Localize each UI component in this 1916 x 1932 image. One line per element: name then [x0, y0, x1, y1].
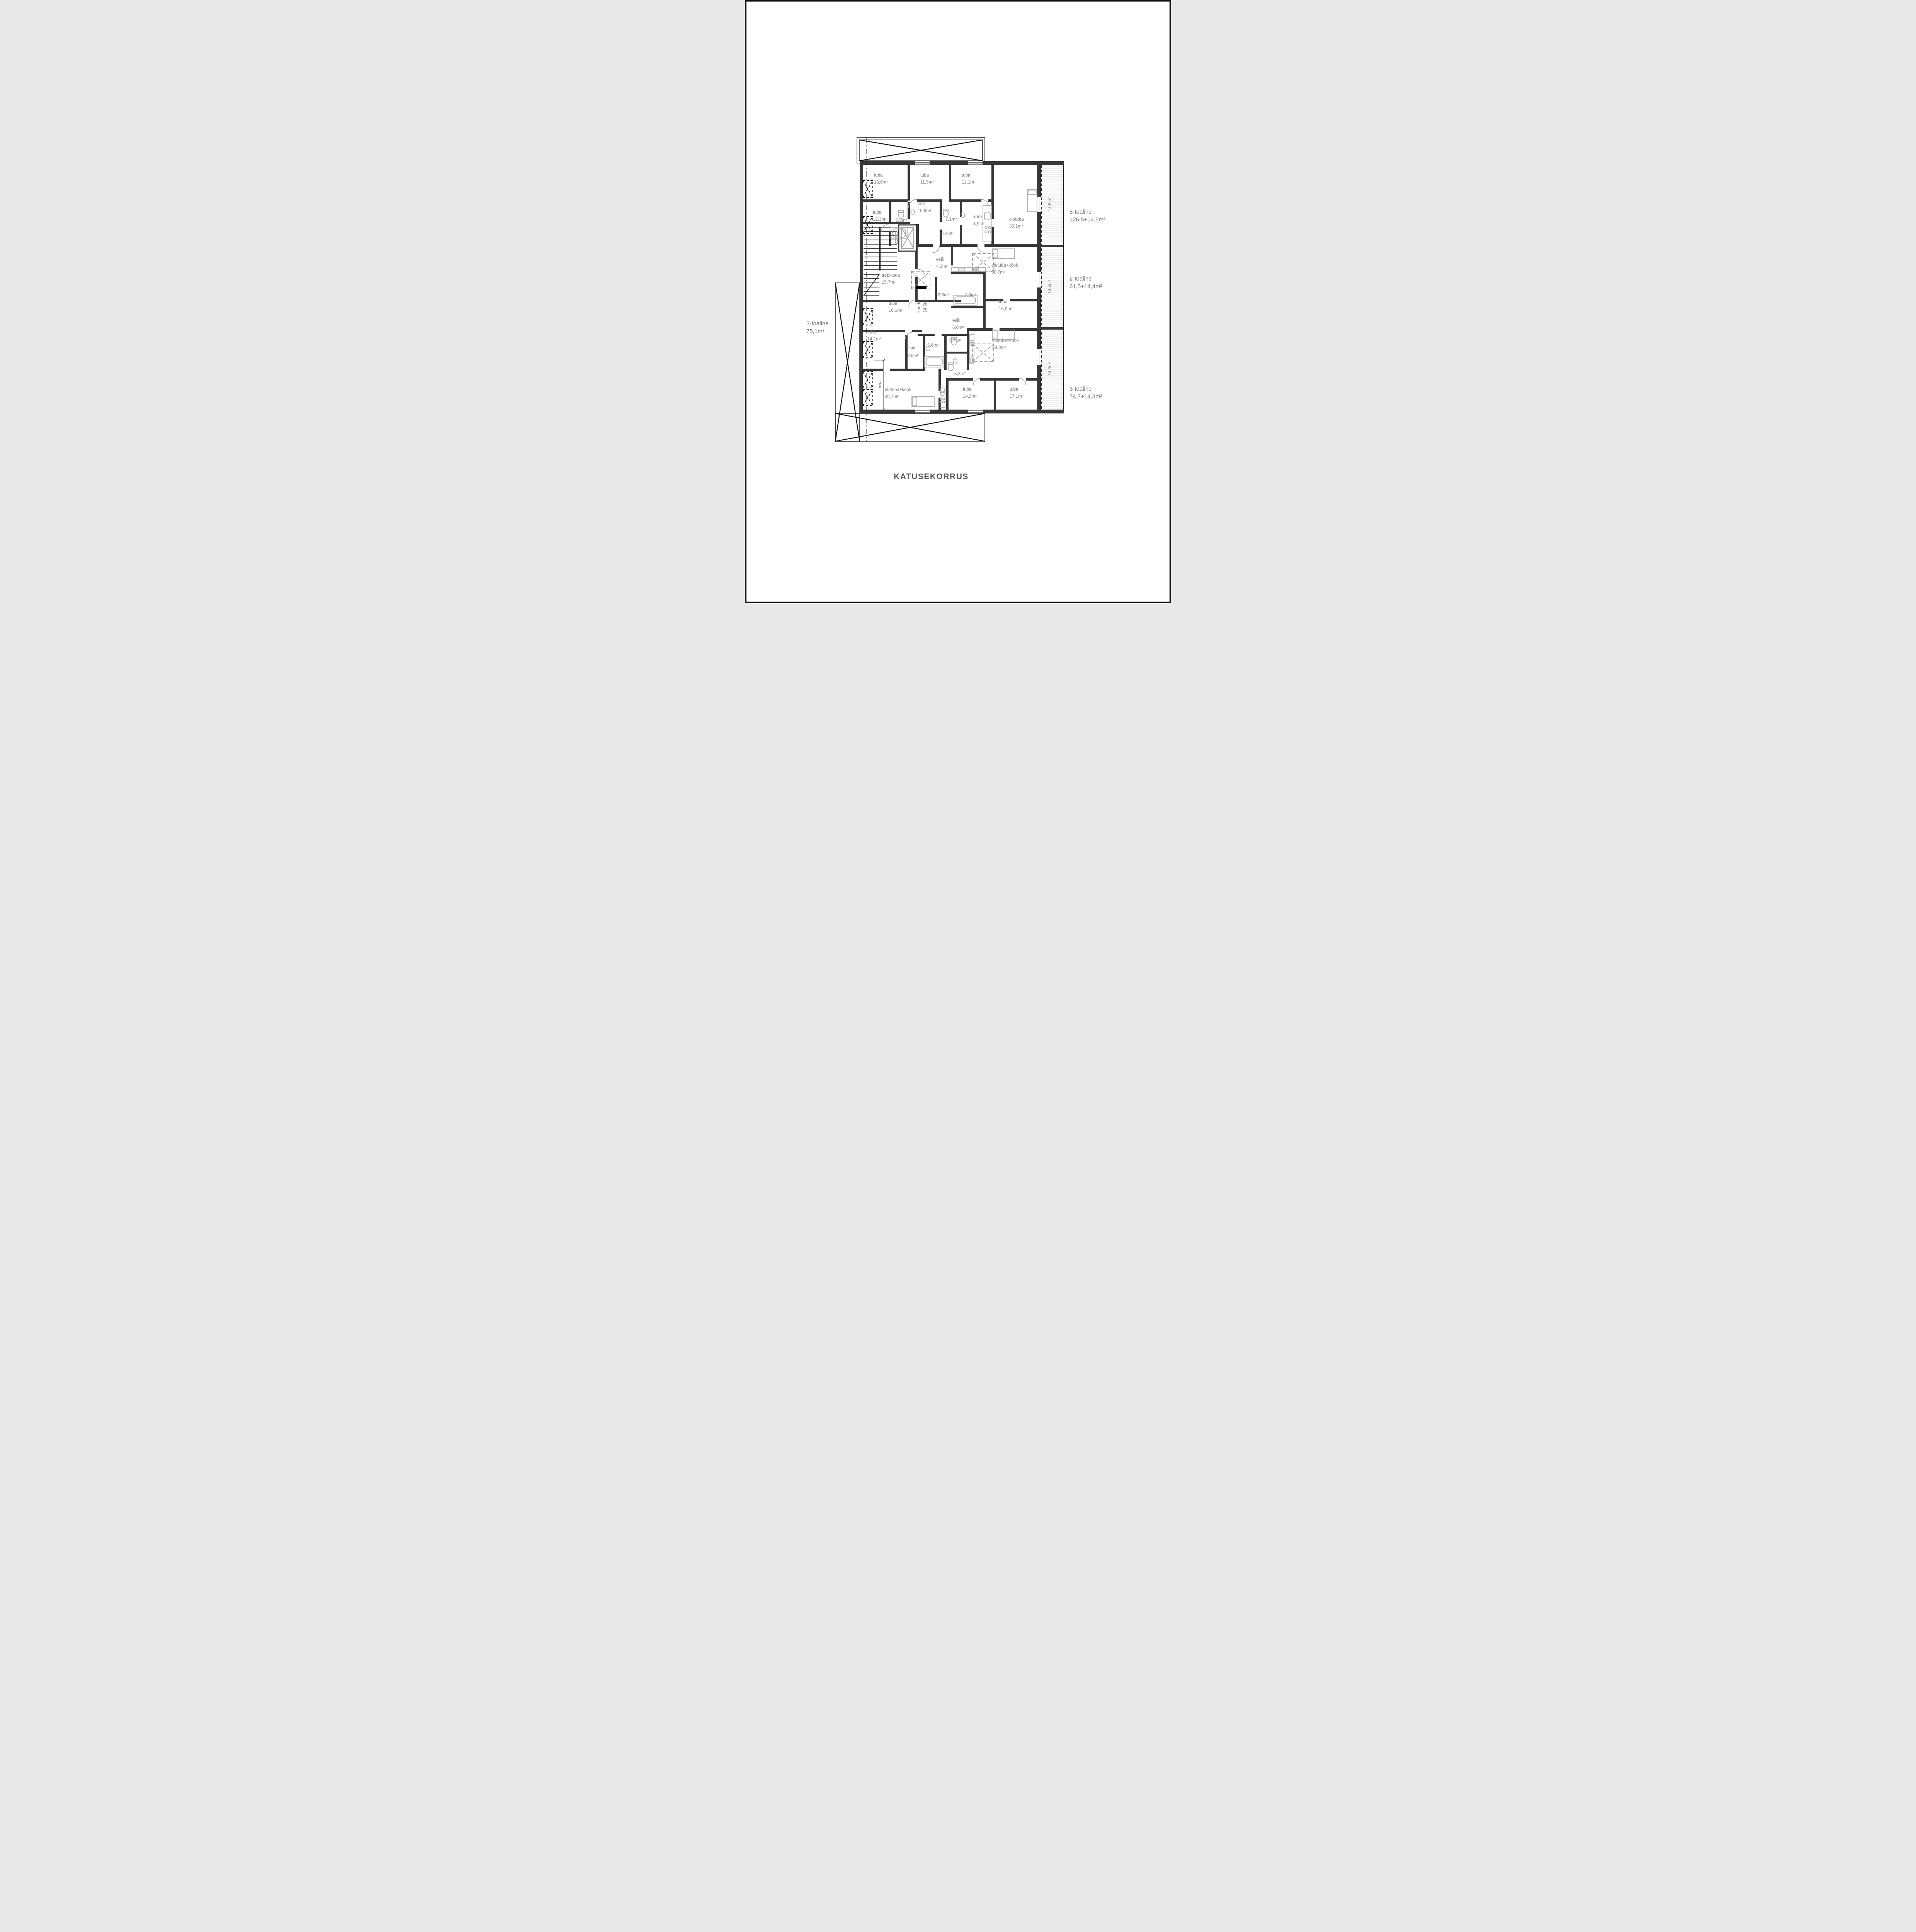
page-title: KATUSEKORRUS	[894, 472, 969, 481]
label-elutuba351-area: 35,1m²	[1009, 224, 1023, 229]
label-tuba136-name: tuba	[874, 173, 883, 178]
label-tuba160-area: 16,0m²	[999, 307, 1013, 311]
label-tuba171-area: 17,1m²	[1010, 394, 1023, 399]
label-tuba121-name: tuba	[962, 173, 971, 178]
annotation-3toaline-left-area: 75,1m²	[806, 328, 825, 335]
floor-plan-drawing: 1826 tuba 13,6m² tuba 11,5m² tuba 12,1m²…	[746, 2, 1170, 602]
staircase	[864, 227, 897, 296]
label-ek307b-name: elutuba+köök	[885, 388, 911, 392]
label-elutuba351-name: elutuba	[1009, 217, 1024, 222]
label-wc26-area: 2,6m²	[938, 293, 949, 298]
bathroom-fixtures	[891, 209, 977, 396]
label-wc79-area: 7,9m²	[965, 293, 976, 298]
label-tuba160-name: tuba	[999, 300, 1008, 304]
interior-walls	[860, 165, 1038, 410]
label-tuba141-area: 14,1m²	[867, 337, 881, 342]
label-tuba123-name: tuba	[873, 210, 882, 215]
label-esik66-name: esik	[952, 318, 961, 323]
label-esik169-area: 16,9m²	[918, 209, 932, 213]
annotation-2toaline-area: 61,5+14,4m²	[1069, 283, 1102, 290]
annotation-3toaline-left-name: 3-toaline	[806, 320, 829, 327]
annotation-3toaline-right-name: 3-toaline	[1069, 386, 1092, 392]
label-esik86-area: 8,6m²	[907, 354, 919, 358]
label-ek307a-area: 30,7m²	[991, 270, 1005, 275]
label-kook89-name: köök	[973, 215, 983, 219]
label-wc27-area: 2,7m²	[949, 338, 961, 343]
label-wc56b-area: 5,6m²	[927, 343, 939, 348]
label-tuba161-area: 16,1m²	[889, 308, 903, 313]
label-trepikoda-area: 15,7m²	[882, 280, 896, 285]
label-ek307a-name: elutuba+köök	[991, 263, 1018, 268]
label-ek307b-area: 30,7m²	[885, 395, 899, 399]
label-esik43-name: esik	[936, 257, 944, 262]
label-kook89-area: 8,9m²	[973, 222, 985, 226]
label-tuba115-name: tuba	[920, 173, 929, 178]
label-tuba142-name: tuba	[963, 387, 972, 392]
label-ek283-name: elutuba+köök	[992, 338, 1019, 343]
label-wc71-area: 7,1m²	[945, 217, 957, 222]
floor-plan-sheet: 1826 tuba 13,6m² tuba 11,5m² tuba 12,1m²…	[745, 0, 1171, 603]
label-wc58-area: 5,8m²	[954, 372, 966, 376]
annotation-2toaline-name: 2-toaline	[1069, 276, 1092, 282]
terrace-top	[857, 138, 985, 163]
label-koridor-area: 14,5m²	[923, 299, 928, 313]
label-tuba161-name: tuba	[889, 301, 898, 306]
skylight-sill	[916, 286, 927, 289]
dimension-text: 1826	[878, 382, 882, 390]
label-tuba142-area: 14,2m²	[963, 394, 977, 399]
label-tuba121-area: 12,1m²	[962, 180, 976, 185]
balcony-label-2: 14,4m²	[1048, 280, 1052, 294]
label-wc56a-area: 5,6m²	[896, 218, 907, 223]
label-esik86-name: esik	[907, 346, 915, 350]
label-wc34-area: 3,4m²	[941, 231, 953, 236]
vent-shafts	[863, 180, 873, 406]
annotation-5toaline-area: 126,5+14,5m²	[1069, 216, 1105, 223]
dimension: 1826	[874, 359, 886, 411]
label-esik43-area: 4,3m²	[936, 264, 948, 269]
label-ek283-area: 28,3m²	[992, 345, 1006, 350]
annotation-5toaline-name: 5-toaline	[1069, 209, 1092, 215]
label-esik66-area: 6,6m²	[952, 325, 964, 330]
label-tuba141-name: tuba	[867, 330, 876, 335]
annotation-3toaline-right-area: 74,7+14,3m²	[1069, 393, 1102, 400]
label-koridor-name: koridor	[917, 299, 921, 313]
label-tuba171-name: tuba	[1010, 387, 1018, 392]
label-esik169-name: esik	[918, 202, 926, 206]
label-tuba115-area: 11,5m²	[920, 180, 934, 185]
balcony-label-1: 14,5m²	[1048, 197, 1052, 211]
label-tuba123-area: 12,3m²	[873, 217, 887, 222]
balcony-label-3: 14,3m²	[1048, 362, 1052, 376]
label-tuba136-area: 13,6m²	[874, 180, 888, 185]
label-trepikoda-name: trepikoda	[882, 273, 900, 278]
